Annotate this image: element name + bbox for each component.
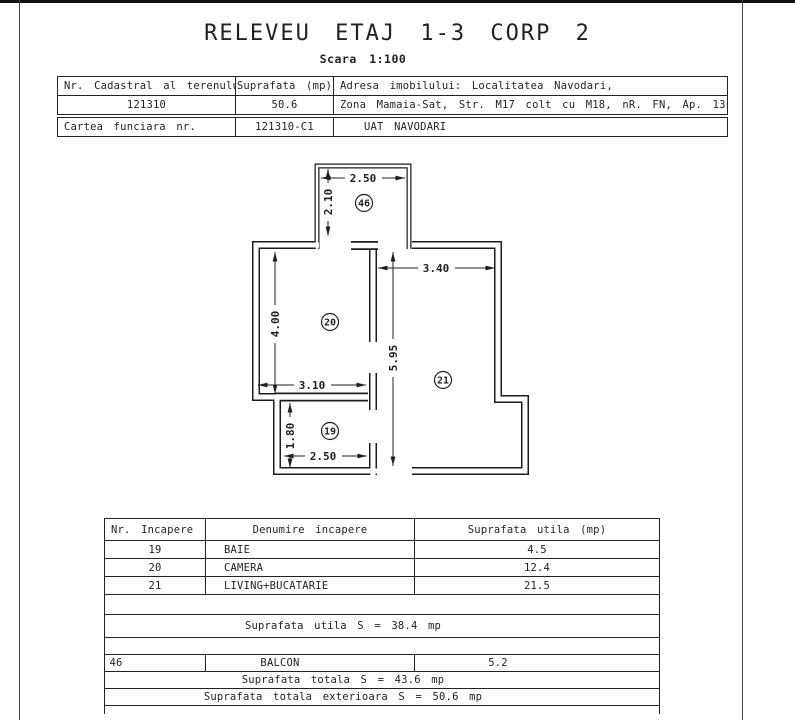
suprafata-totala-exterioara: Suprafata totala exterioara S = 50.6 mp [105, 689, 660, 706]
dim-middle-height: 5.95 [387, 345, 400, 372]
room-table: Nr. Incapere Denumire incapere Suprafata… [104, 518, 660, 714]
cartea-funciara-label: Cartea funciara nr. [58, 118, 236, 137]
suprafata-totala: Suprafata totala S = 43.6 mp [105, 672, 660, 689]
wall-outline-left [256, 245, 377, 471]
cadastral-sheet: RELEVEU ETAJ 1-3 CORP 2 Scara 1:100 Nr. … [0, 0, 795, 720]
room-number-living: 21 [437, 376, 449, 387]
cadastral-number: 121310 [58, 96, 236, 115]
spacer-row [105, 706, 660, 715]
sheet-border-left [19, 0, 20, 720]
room-bubble-balcon: 46 [356, 195, 373, 212]
info-table: Nr. Cadastral al terenului Suprafata (mp… [57, 76, 728, 137]
table-row: Suprafata totala S = 43.6 mp [105, 672, 660, 689]
room-table-header-area: Suprafata utila (mp) [415, 519, 660, 541]
room-number-balcon: 46 [358, 199, 370, 210]
room-bubble-camera: 20 [322, 314, 339, 331]
dim-baie-width: 2.50 [310, 450, 337, 463]
room-name: BAIE [206, 541, 415, 559]
dim-living-width: 3.40 [423, 262, 450, 275]
page-title: RELEVEU ETAJ 1-3 CORP 2 [0, 21, 795, 46]
room-bubble-living: 21 [435, 372, 452, 389]
room-nr: 46 [105, 655, 206, 672]
dim-baie-height: 1.80 [284, 423, 297, 450]
room-bubble-baie: 19 [322, 423, 339, 440]
table-row: 46 BALCON 5.2 [105, 655, 660, 672]
room-nr: 19 [105, 541, 206, 559]
sheet-border-top [0, 0, 795, 3]
room-area: 12.4 [415, 559, 660, 577]
room-area: 21.5 [415, 577, 660, 595]
room-nr: 21 [105, 577, 206, 595]
room-number-camera: 20 [324, 318, 336, 329]
suprafata-utila-total: Suprafata utila S = 38.4 mp [105, 615, 660, 638]
room-number-baie: 19 [324, 427, 336, 438]
dim-camera-width: 3.10 [299, 379, 326, 392]
cartea-funciara-value: 121310-C1 [236, 118, 334, 137]
info-address-line2: Zona Mamaia-Sat, Str. M17 colt cu M18, n… [334, 96, 728, 115]
room-table-header-name: Denumire incapere [206, 519, 415, 541]
dim-balcony-depth: 2.10 [322, 189, 335, 216]
dim-balcony-width: 2.50 [350, 172, 377, 185]
dim-camera-height: 4.00 [269, 311, 282, 338]
uat-label: UAT NAVODARI [334, 118, 728, 137]
spacer-row [105, 595, 660, 615]
info-col1-header: Nr. Cadastral al terenului [58, 77, 236, 96]
room-labels: 46 20 21 19 [322, 195, 452, 440]
scale-label: Scara 1:100 [0, 52, 726, 66]
table-row: Suprafata utila S = 38.4 mp [105, 615, 660, 638]
table-row: 19 BAIE 4.5 [105, 541, 660, 559]
table-row: 20 CAMERA 12.4 [105, 559, 660, 577]
room-area: 4.5 [415, 541, 660, 559]
info-col2-header: Suprafata (mp) [236, 77, 334, 96]
wall-outline-right [412, 245, 525, 471]
room-area: 5.2 [415, 655, 660, 672]
room-name: CAMERA [206, 559, 415, 577]
room-nr: 20 [105, 559, 206, 577]
terrain-area: 50.6 [236, 96, 334, 115]
room-name: BALCON [206, 655, 415, 672]
table-row: 21 LIVING+BUCATARIE 21.5 [105, 577, 660, 595]
floor-plan: 2.50 2.10 3.40 4.00 5.95 3.10 [230, 150, 550, 490]
room-name: LIVING+BUCATARIE [206, 577, 415, 595]
table-row: Suprafata totala exterioara S = 50.6 mp [105, 689, 660, 706]
room-table-header-nr: Nr. Incapere [105, 519, 206, 541]
spacer-row [105, 638, 660, 655]
sheet-border-right [742, 0, 743, 720]
info-address-line1: Adresa imobilului: Localitatea Navodari, [334, 77, 728, 96]
